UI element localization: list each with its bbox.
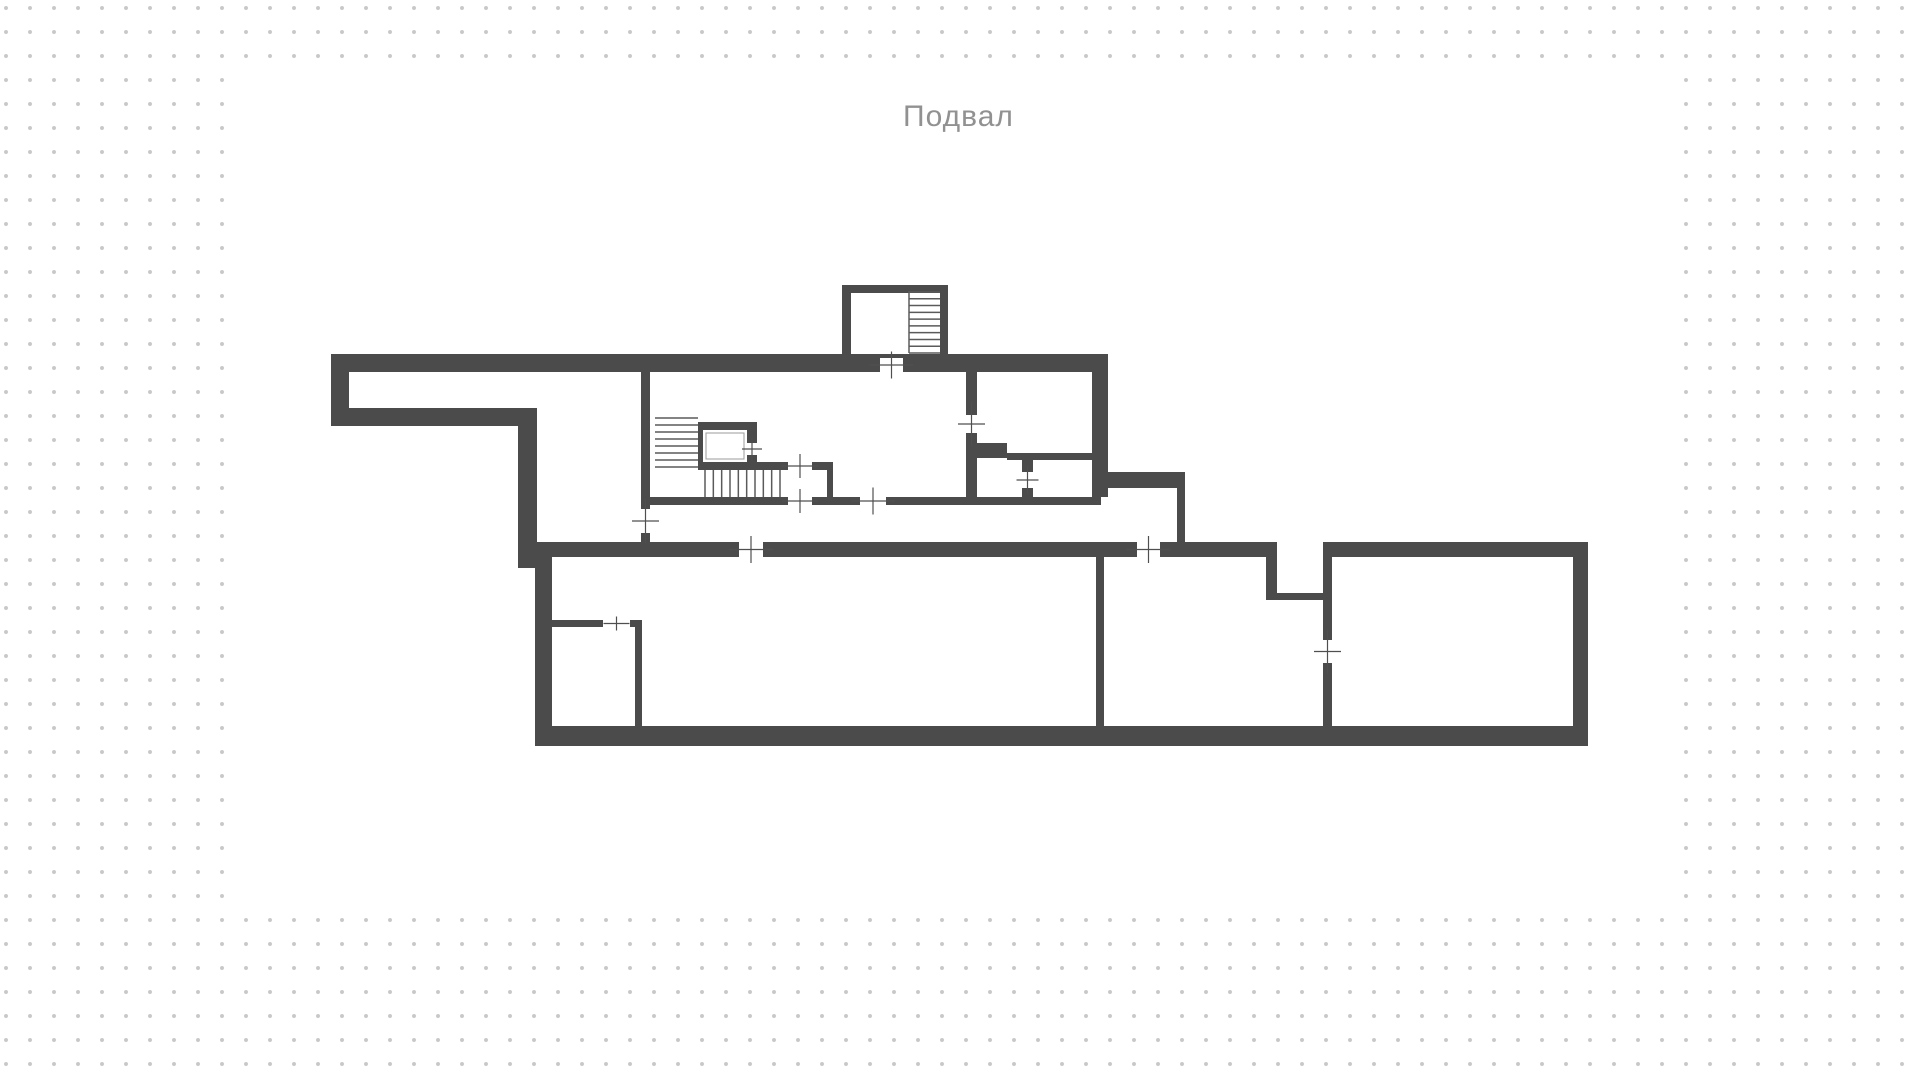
door-marker[interactable] <box>782 489 818 513</box>
door-marker[interactable] <box>958 402 985 446</box>
wall-segment[interactable] <box>642 497 788 505</box>
wall-segment[interactable] <box>331 354 1108 372</box>
wall-segment[interactable] <box>698 462 788 470</box>
wall-segment[interactable] <box>886 497 1101 505</box>
stair-treads[interactable] <box>909 292 940 353</box>
door-marker[interactable] <box>1127 536 1171 563</box>
wall-segment[interactable] <box>552 620 603 627</box>
wall-segment[interactable] <box>1177 488 1185 542</box>
wall-segment[interactable] <box>940 285 948 354</box>
door-marker[interactable] <box>729 536 773 563</box>
door-marker[interactable] <box>604 617 630 631</box>
wall-segment[interactable] <box>1092 472 1185 488</box>
stair-treads[interactable] <box>655 418 698 467</box>
wall-segment[interactable] <box>535 542 739 557</box>
wall-segment[interactable] <box>518 408 537 568</box>
wall-segment[interactable] <box>641 372 650 509</box>
wall-segment[interactable] <box>763 542 1137 557</box>
floorplan-svg[interactable] <box>0 0 1920 1078</box>
door-marker[interactable] <box>782 454 818 478</box>
wall-segment[interactable] <box>1323 557 1332 640</box>
wall-segment[interactable] <box>1266 593 1327 600</box>
wall-segment[interactable] <box>535 557 552 746</box>
door-marker[interactable] <box>1314 630 1341 674</box>
door-marker[interactable] <box>1017 466 1039 494</box>
stair-treads[interactable] <box>705 470 780 497</box>
wall-segment[interactable] <box>1573 542 1588 746</box>
elevator-shaft-interior[interactable] <box>703 430 747 462</box>
wall-segment[interactable] <box>1007 453 1092 460</box>
wall-segment[interactable] <box>970 443 1007 458</box>
door-marker[interactable] <box>632 499 659 543</box>
wall-segment[interactable] <box>1323 542 1588 557</box>
wall-segment[interactable] <box>842 285 851 354</box>
wall-segment[interactable] <box>331 408 537 426</box>
wall-segment[interactable] <box>635 620 642 726</box>
wall-segment[interactable] <box>1096 557 1104 726</box>
wall-segment[interactable] <box>1160 542 1277 557</box>
door-marker[interactable] <box>851 488 895 515</box>
wall-segment[interactable] <box>535 726 1588 746</box>
